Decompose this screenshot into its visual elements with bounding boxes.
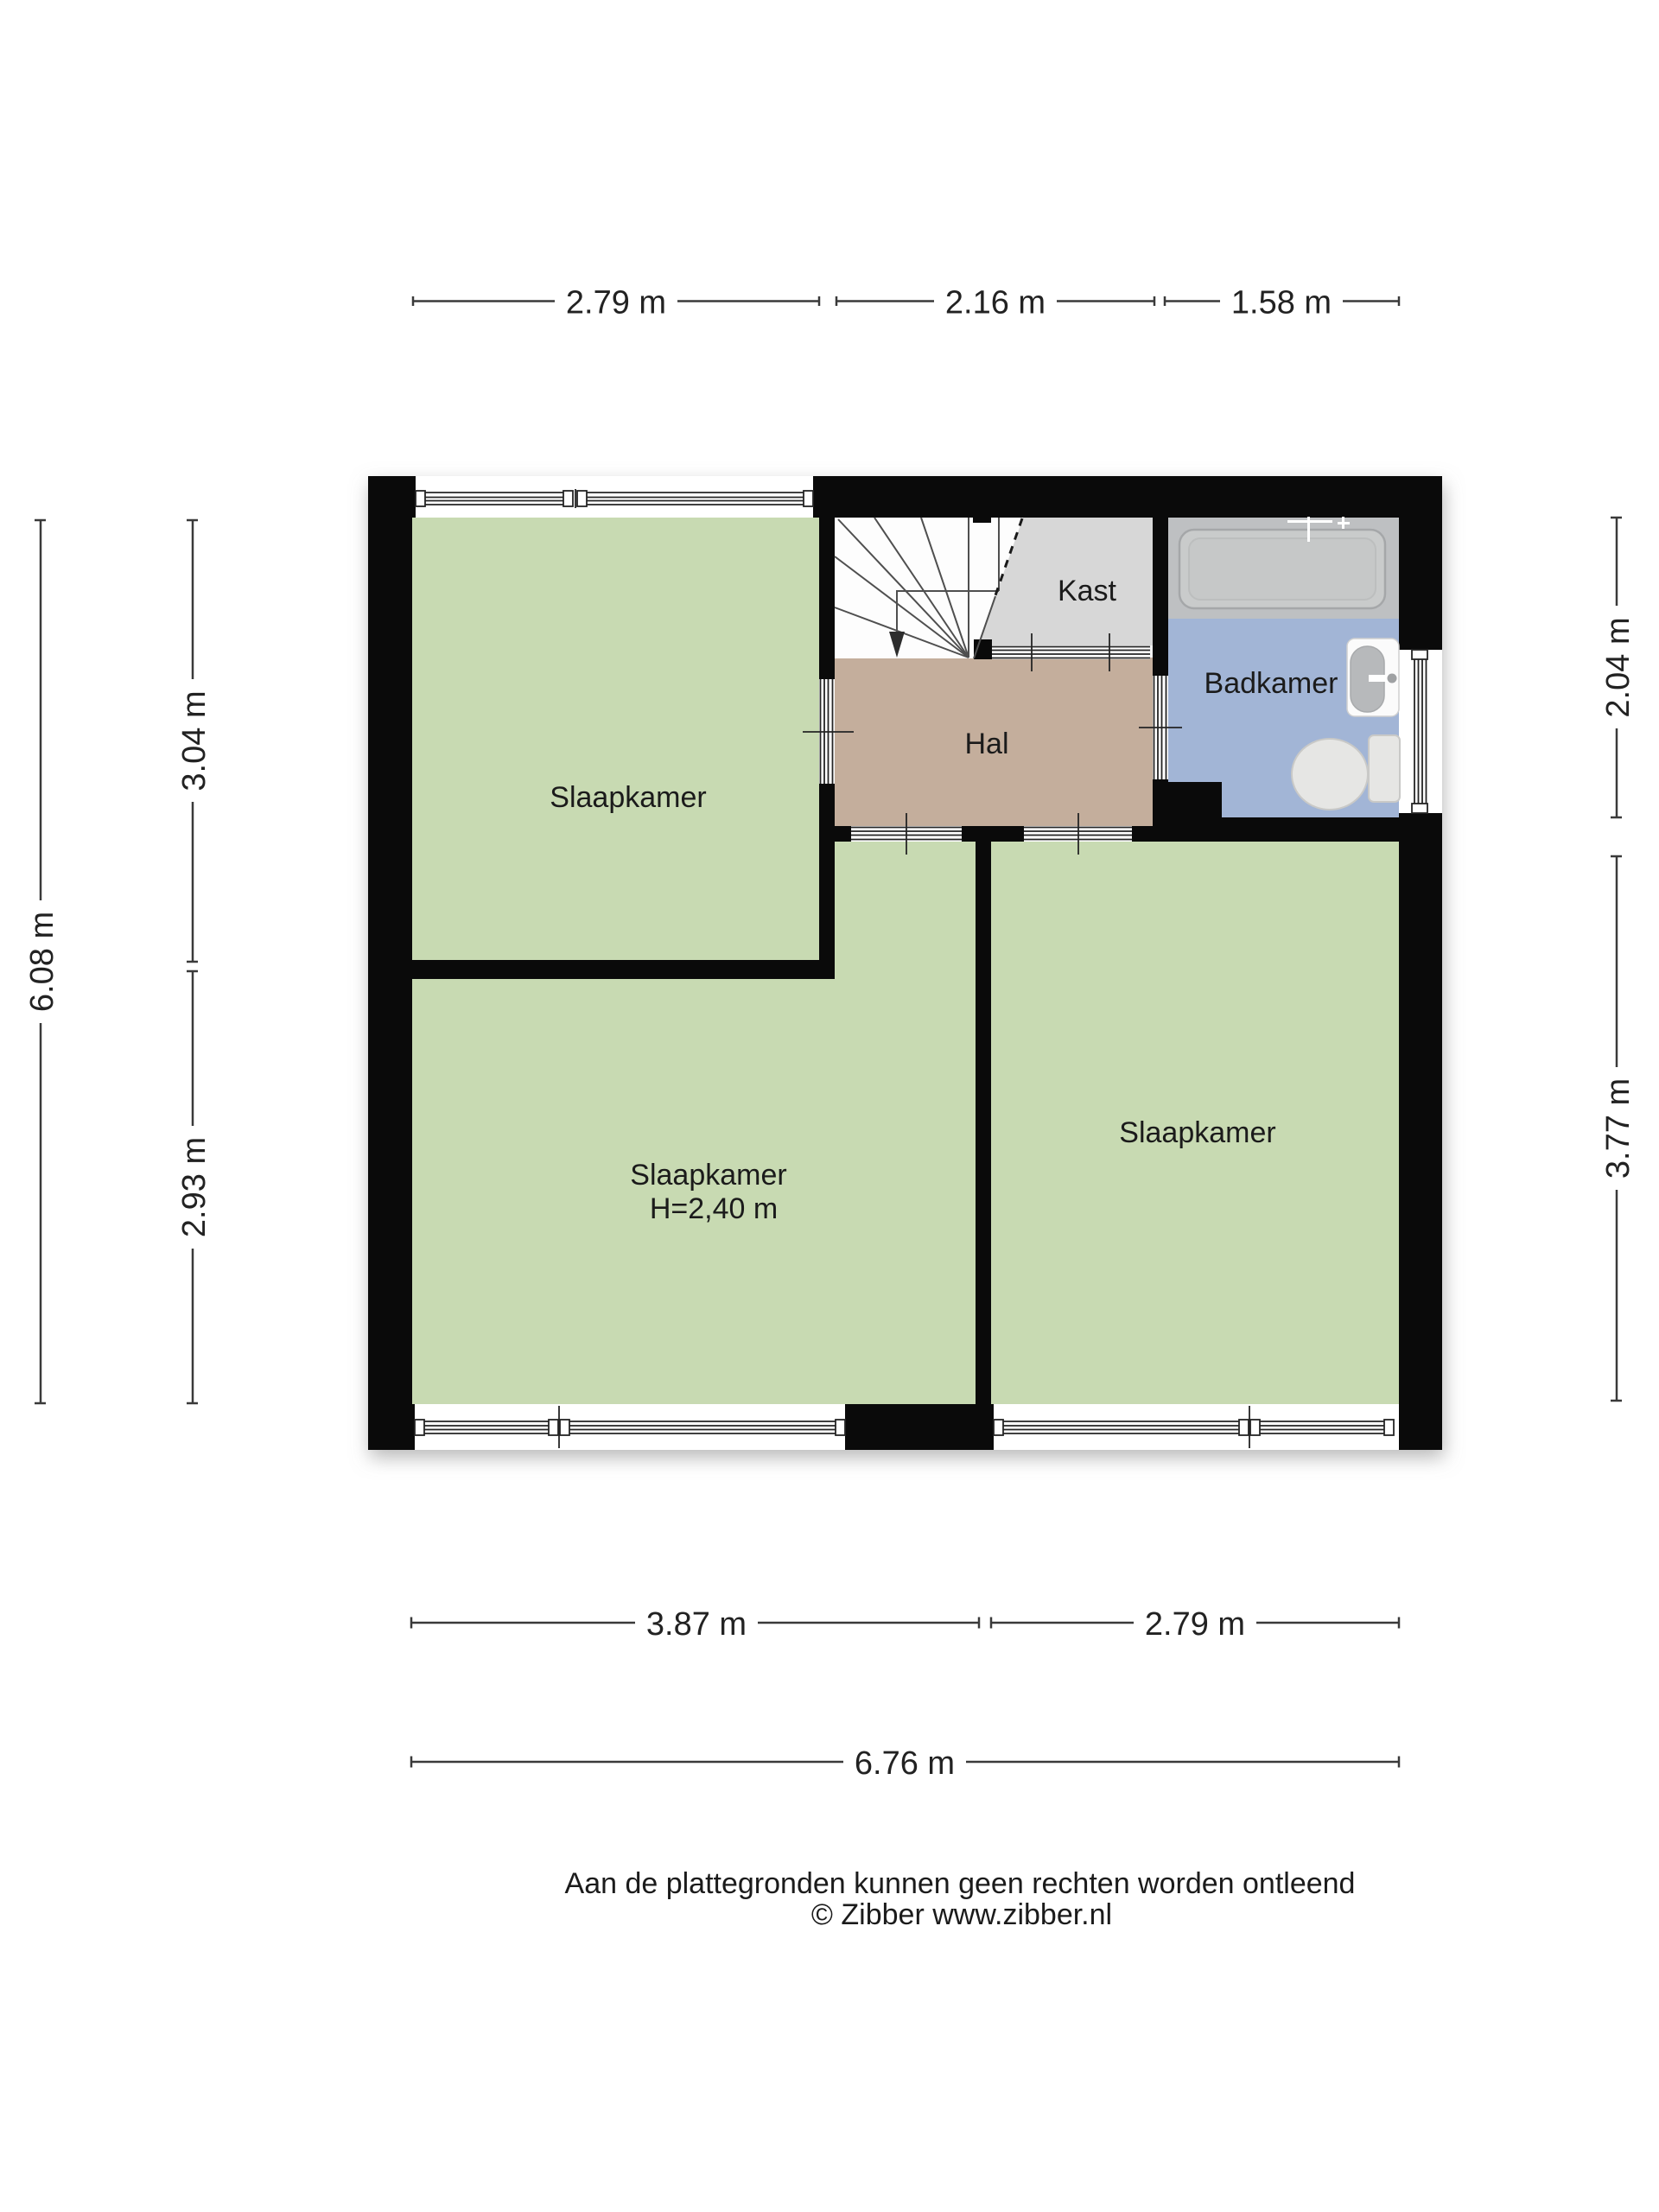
svg-text:2.04 m: 2.04 m bbox=[1600, 617, 1637, 717]
svg-text:2.79 m: 2.79 m bbox=[1145, 1606, 1245, 1643]
svg-text:3.77 m: 3.77 m bbox=[1600, 1078, 1637, 1179]
svg-text:Hal: Hal bbox=[964, 728, 1008, 760]
svg-text:3.04 m: 3.04 m bbox=[176, 690, 213, 791]
svg-text:H=2,40 m: H=2,40 m bbox=[650, 1192, 778, 1225]
svg-text:2.16 m: 2.16 m bbox=[945, 285, 1046, 321]
svg-text:6.08 m: 6.08 m bbox=[24, 912, 60, 1012]
svg-text:Badkamer: Badkamer bbox=[1205, 667, 1338, 700]
svg-text:Slaapkamer: Slaapkamer bbox=[630, 1159, 786, 1192]
svg-text:Slaapkamer: Slaapkamer bbox=[550, 781, 706, 814]
svg-text:6.76 m: 6.76 m bbox=[855, 1745, 955, 1782]
svg-text:2.93 m: 2.93 m bbox=[176, 1137, 213, 1237]
svg-text:2.79 m: 2.79 m bbox=[566, 285, 666, 321]
svg-text:3.87 m: 3.87 m bbox=[646, 1606, 747, 1643]
svg-text:Kast: Kast bbox=[1058, 575, 1117, 607]
svg-text:© Zibber www.zibber.nl: © Zibber www.zibber.nl bbox=[811, 1898, 1112, 1931]
svg-text:1.58 m: 1.58 m bbox=[1231, 285, 1332, 321]
svg-text:Aan de plattegronden kunnen ge: Aan de plattegronden kunnen geen rechten… bbox=[565, 1867, 1356, 1900]
svg-text:Slaapkamer: Slaapkamer bbox=[1119, 1116, 1275, 1149]
